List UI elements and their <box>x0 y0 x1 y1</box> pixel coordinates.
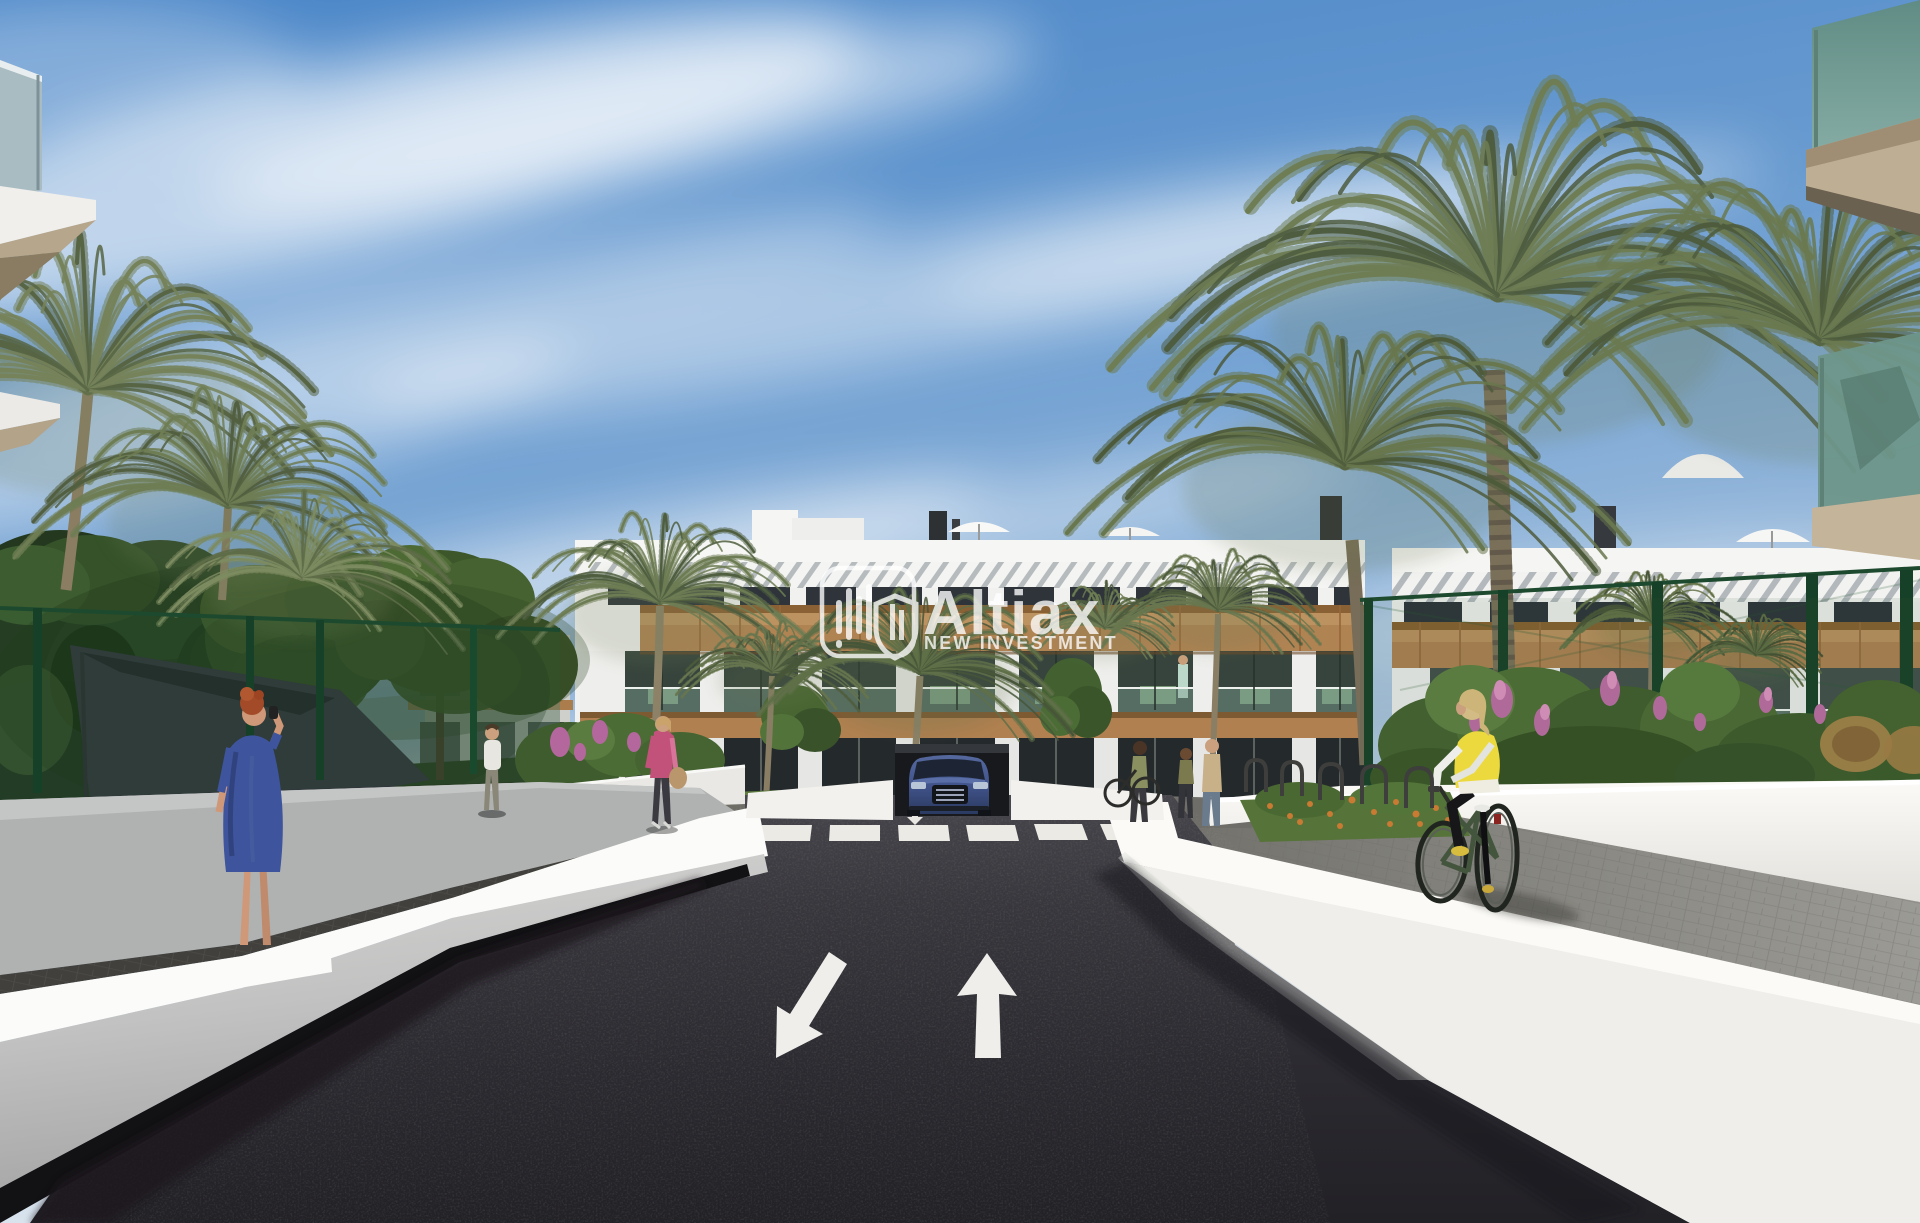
svg-text:NEW INVESTMENT: NEW INVESTMENT <box>924 633 1118 653</box>
